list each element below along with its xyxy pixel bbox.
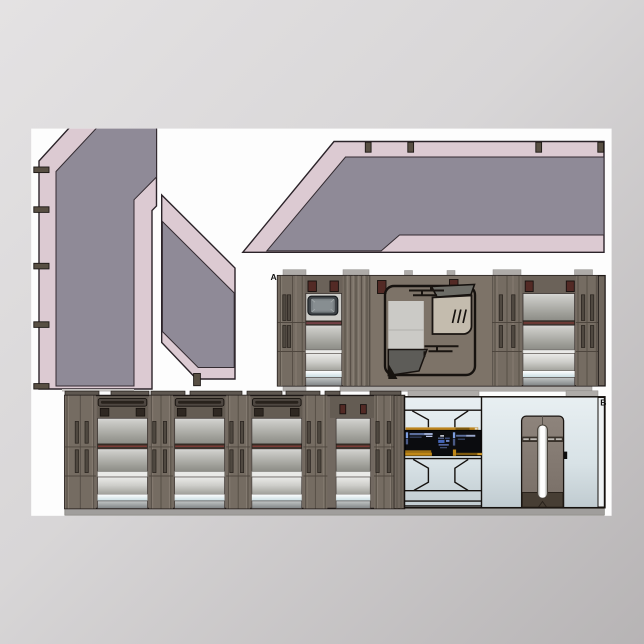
svg-text:B: B bbox=[600, 398, 606, 408]
svg-text:A: A bbox=[271, 272, 277, 282]
